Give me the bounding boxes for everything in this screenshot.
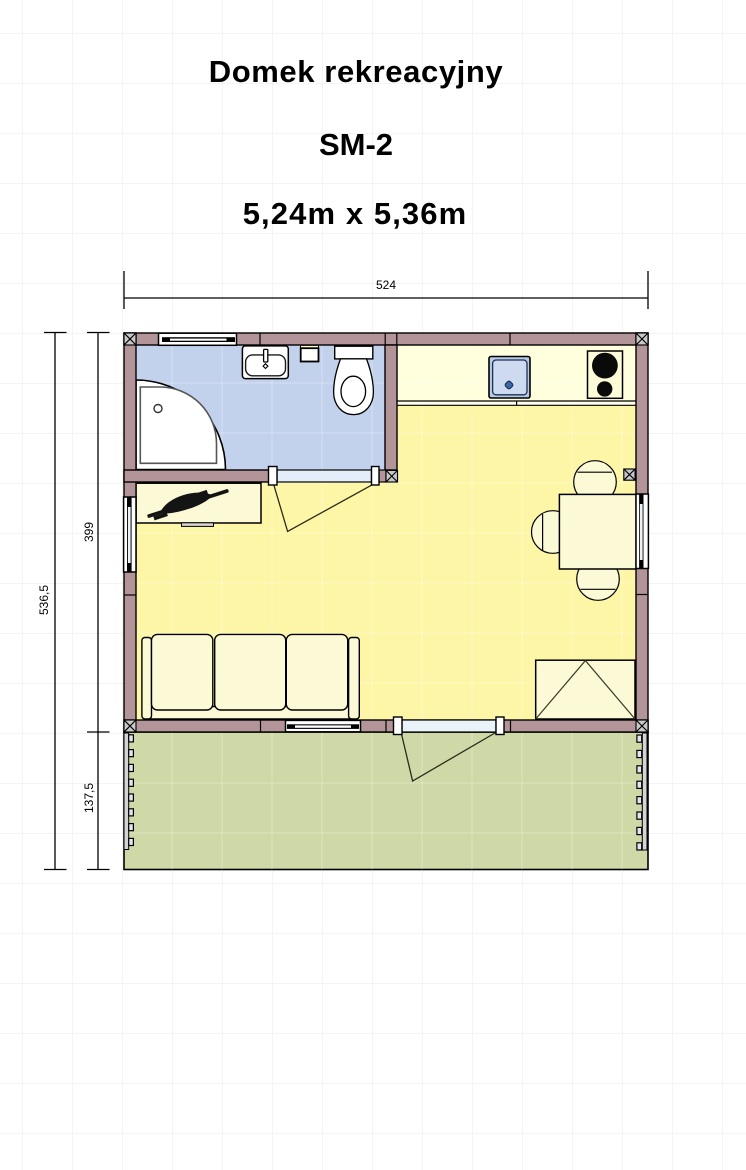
svg-text:399: 399 [82, 522, 96, 542]
svg-text:524: 524 [376, 278, 396, 292]
svg-text:Domek rekreacyjny: Domek rekreacyjny [209, 54, 504, 89]
svg-text:137,5: 137,5 [82, 783, 96, 813]
svg-text:SM-2: SM-2 [319, 127, 393, 162]
svg-text:5,24m x 5,36m: 5,24m x 5,36m [243, 196, 468, 231]
svg-text:536,5: 536,5 [37, 585, 51, 615]
